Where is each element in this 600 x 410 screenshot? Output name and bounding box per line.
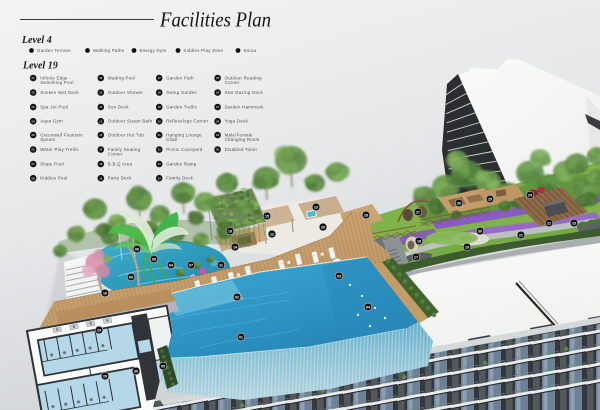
svg-text:18: 18	[158, 91, 162, 95]
svg-text:Garden Trellis: Garden Trellis	[166, 105, 197, 110]
svg-text:Picnic Courtyard: Picnic Courtyard	[166, 147, 203, 152]
svg-text:Swimming Pool: Swimming Pool	[40, 80, 74, 85]
svg-text:Changing Room: Changing Room	[225, 137, 260, 142]
svg-text:Garden Ramp: Garden Ramp	[166, 162, 197, 167]
svg-text:06: 06	[135, 247, 139, 251]
svg-text:30: 30	[134, 369, 138, 373]
svg-text:29: 29	[97, 328, 101, 332]
svg-text:Yoga Deck: Yoga Deck	[225, 119, 249, 124]
svg-text:Level 4: Level 4	[21, 35, 52, 46]
svg-text:26: 26	[216, 91, 220, 95]
svg-text:Party Deck: Party Deck	[108, 176, 133, 181]
svg-text:Star Gazing Deck: Star Gazing Deck	[225, 90, 264, 95]
svg-text:B.B.Q Area: B.B.Q Area	[108, 162, 133, 167]
svg-text:18: 18	[417, 239, 421, 243]
svg-text:29: 29	[216, 133, 220, 137]
svg-text:27: 27	[216, 105, 220, 109]
svg-text:Outdoor Hot Tub: Outdoor Hot Tub	[108, 133, 145, 138]
svg-text:Family Deck: Family Deck	[166, 176, 193, 181]
svg-text:Slope Pool: Slope Pool	[40, 162, 64, 167]
svg-text:Water Play Trellis: Water Play Trellis	[40, 147, 79, 152]
svg-text:28: 28	[216, 119, 220, 123]
svg-text:Walking Paths: Walking Paths	[93, 48, 124, 53]
svg-text:14: 14	[99, 148, 103, 152]
svg-text:15: 15	[99, 162, 103, 166]
svg-text:28: 28	[364, 213, 368, 217]
svg-text:06: 06	[32, 148, 36, 152]
svg-text:09: 09	[99, 76, 103, 80]
svg-text:03: 03	[337, 274, 341, 278]
svg-text:Level 19: Level 19	[22, 61, 58, 72]
svg-text:02: 02	[32, 91, 36, 95]
svg-text:04: 04	[169, 263, 173, 267]
svg-text:26: 26	[457, 201, 461, 205]
svg-text:07: 07	[32, 162, 36, 166]
svg-text:17: 17	[414, 255, 418, 259]
svg-text:Outdoor Shower: Outdoor Shower	[108, 90, 144, 95]
svg-text:24: 24	[158, 176, 162, 180]
svg-text:Kiddies Pool: Kiddies Pool	[40, 176, 67, 181]
svg-text:25: 25	[216, 76, 220, 80]
svg-text:05: 05	[32, 133, 36, 137]
svg-text:08: 08	[152, 257, 156, 261]
svg-text:Garden Terrace: Garden Terrace	[37, 48, 71, 53]
svg-text:13: 13	[99, 133, 103, 137]
svg-text:Spouts: Spouts	[40, 137, 55, 142]
svg-text:05: 05	[161, 364, 165, 368]
svg-text:Disabled Toilet: Disabled Toilet	[225, 147, 258, 152]
svg-text:30: 30	[216, 148, 220, 152]
svg-text:Garden Path: Garden Path	[166, 76, 194, 81]
svg-text:12: 12	[270, 232, 274, 236]
svg-text:20: 20	[158, 119, 162, 123]
svg-text:20: 20	[321, 225, 325, 229]
svg-text:01: 01	[239, 335, 243, 339]
svg-text:16: 16	[99, 176, 103, 180]
svg-text:29: 29	[103, 374, 107, 378]
svg-text:08: 08	[32, 176, 36, 180]
svg-text:Chair: Chair	[166, 137, 178, 142]
svg-text:11: 11	[99, 105, 102, 109]
svg-text:04: 04	[32, 119, 36, 123]
svg-text:22: 22	[547, 221, 551, 225]
svg-text:19: 19	[158, 105, 162, 109]
svg-text:27: 27	[416, 210, 420, 214]
svg-text:Surau: Surau	[244, 48, 257, 53]
svg-text:Reflexology Corner: Reflexology Corner	[166, 119, 208, 124]
svg-text:23: 23	[158, 162, 162, 166]
svg-text:02: 02	[235, 295, 239, 299]
svg-text:Garden Hammock: Garden Hammock	[225, 105, 265, 110]
svg-text:14: 14	[233, 245, 237, 249]
svg-text:Facilities Plan: Facilities Plan	[159, 8, 271, 32]
svg-text:23: 23	[572, 221, 576, 225]
svg-text:Corner: Corner	[108, 151, 123, 156]
svg-text:11: 11	[219, 263, 223, 267]
svg-text:12: 12	[99, 119, 103, 123]
svg-text:Outdoor Steam Bath: Outdoor Steam Bath	[108, 119, 153, 124]
svg-text:30: 30	[478, 229, 482, 233]
svg-text:15: 15	[265, 214, 269, 218]
svg-text:07: 07	[189, 263, 193, 267]
svg-text:Kiddies Play Zone: Kiddies Play Zone	[184, 48, 224, 53]
svg-text:21: 21	[158, 133, 162, 137]
svg-text:19: 19	[465, 245, 469, 249]
svg-text:Corner: Corner	[225, 80, 240, 85]
svg-text:04: 04	[366, 305, 370, 309]
svg-text:09: 09	[129, 275, 133, 279]
svg-text:Swing Garden: Swing Garden	[166, 90, 197, 95]
svg-text:10: 10	[103, 291, 107, 295]
svg-text:19: 19	[228, 229, 232, 233]
svg-text:Aqua Gym: Aqua Gym	[40, 119, 63, 124]
svg-text:17: 17	[158, 76, 162, 80]
svg-text:21: 21	[519, 233, 523, 237]
svg-text:25: 25	[488, 197, 492, 201]
svg-text:10: 10	[99, 91, 103, 95]
svg-text:01: 01	[32, 76, 36, 80]
svg-text:03: 03	[32, 105, 36, 109]
svg-text:Sunken Wet Deck: Sunken Wet Deck	[40, 90, 79, 95]
svg-text:13: 13	[314, 205, 318, 209]
svg-text:Spa Jet Pool: Spa Jet Pool	[40, 105, 68, 110]
svg-text:22: 22	[158, 148, 162, 152]
svg-text:Sun Deck: Sun Deck	[108, 105, 130, 110]
svg-text:Energy Gym: Energy Gym	[140, 48, 167, 53]
svg-text:Wading Pool: Wading Pool	[108, 76, 136, 81]
svg-text:24: 24	[528, 193, 532, 197]
